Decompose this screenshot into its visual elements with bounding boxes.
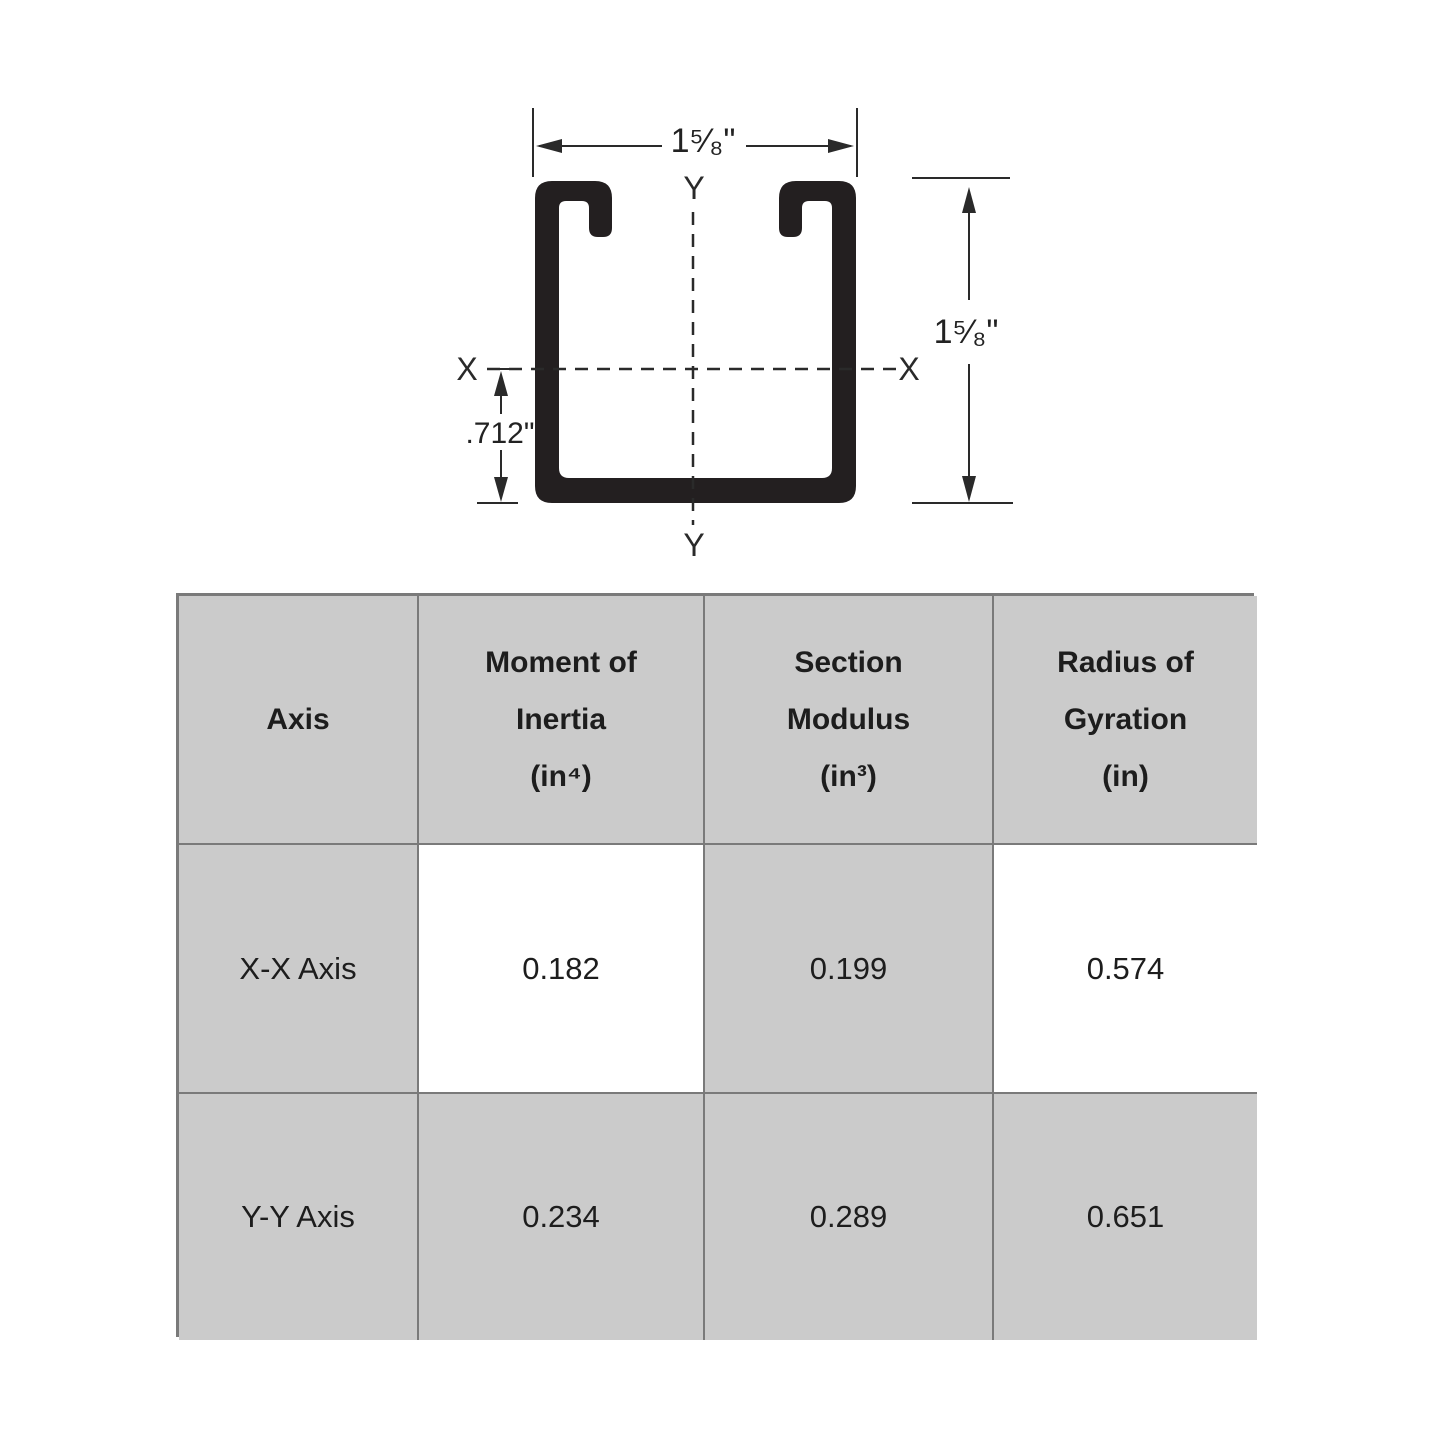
header-axis: Axis [179, 596, 419, 845]
channel-section-shape [535, 181, 856, 503]
row-label-xx-axis: X-X Axis [179, 845, 419, 1094]
axis-name: Y-Y Axis [241, 1199, 355, 1235]
width-dimension: 1⁵⁄₈" [533, 108, 857, 177]
xx-moment-of-inertia-value: 0.182 [419, 845, 705, 1094]
x-axis-label-right: X [898, 351, 919, 387]
xx-radius-of-gyration-value: 0.574 [994, 845, 1257, 1094]
height-dimension: 1⁵⁄₈" [912, 178, 1013, 503]
offset-dimension: .712" [465, 369, 534, 503]
header-line: Section [794, 634, 902, 691]
strut-channel-cross-section-diagram: 1⁵⁄₈" 1⁵⁄₈" .712" X X Y Y [0, 0, 1445, 595]
xx-section-modulus-value: 0.199 [705, 845, 994, 1094]
y-axis-label-bottom: Y [683, 527, 704, 563]
value: 0.234 [522, 1199, 600, 1235]
arrow-right-icon [828, 139, 854, 153]
offset-dimension-label: .712" [465, 417, 534, 450]
header-line: Inertia [516, 691, 606, 748]
yy-moment-of-inertia-value: 0.234 [419, 1094, 705, 1340]
value: 0.199 [810, 951, 888, 987]
header-line: Radius of [1057, 634, 1194, 691]
section-properties-table: Axis Moment of Inertia (in⁴) Section Mod… [176, 593, 1254, 1337]
header-line: Gyration [1064, 691, 1187, 748]
y-axis-label-top: Y [683, 170, 704, 206]
width-dimension-label: 1⁵⁄₈" [671, 122, 736, 160]
header-line: Modulus [787, 691, 910, 748]
header-section-modulus: Section Modulus (in³) [705, 596, 994, 845]
value: 0.182 [522, 951, 600, 987]
value: 0.651 [1087, 1199, 1165, 1235]
arrow-up-icon [494, 371, 508, 396]
arrow-left-icon [536, 139, 562, 153]
arrow-up-icon [962, 187, 976, 213]
x-axis-label-left: X [456, 351, 477, 387]
value: 0.574 [1087, 951, 1165, 987]
arrow-down-icon [494, 477, 508, 502]
height-dimension-label: 1⁵⁄₈" [934, 313, 999, 351]
header-line: Moment of [485, 634, 637, 691]
header-units: (in⁴) [530, 748, 591, 805]
header-units: (in³) [820, 748, 877, 805]
header-units: (in) [1102, 748, 1149, 805]
header-radius-of-gyration: Radius of Gyration (in) [994, 596, 1257, 845]
yy-section-modulus-value: 0.289 [705, 1094, 994, 1340]
page: 1⁵⁄₈" 1⁵⁄₈" .712" X X Y Y [0, 0, 1445, 1445]
row-label-yy-axis: Y-Y Axis [179, 1094, 419, 1340]
arrow-down-icon [962, 476, 976, 502]
header-line: Axis [266, 691, 329, 748]
header-moment-of-inertia: Moment of Inertia (in⁴) [419, 596, 705, 845]
axis-name: X-X Axis [239, 951, 356, 987]
value: 0.289 [810, 1199, 888, 1235]
yy-radius-of-gyration-value: 0.651 [994, 1094, 1257, 1340]
